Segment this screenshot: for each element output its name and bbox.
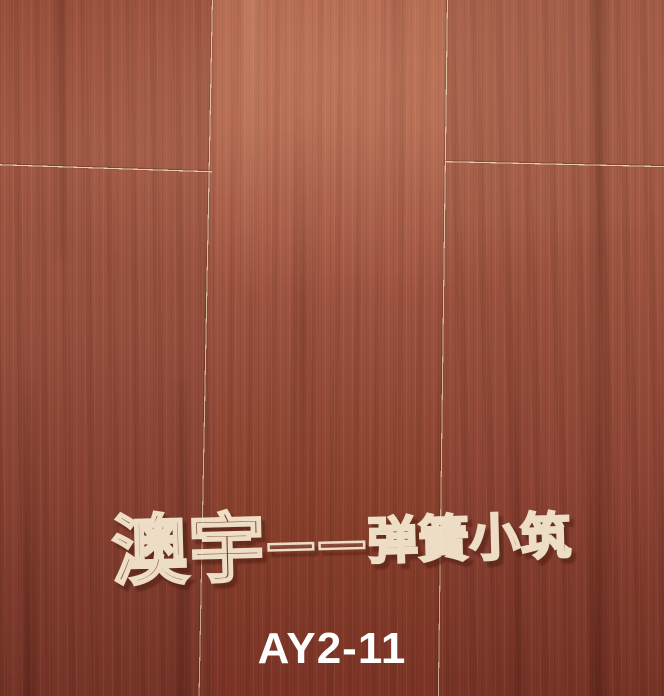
product-code-label: AY2-11 xyxy=(0,624,664,674)
plank-column-center xyxy=(213,0,446,696)
plank-column-left xyxy=(0,0,213,696)
wood-flooring-photo: 澳宇——弹簧小筑 澳宇——弹簧小筑 AY2-11 xyxy=(0,0,664,696)
plank-column-right xyxy=(446,0,664,696)
